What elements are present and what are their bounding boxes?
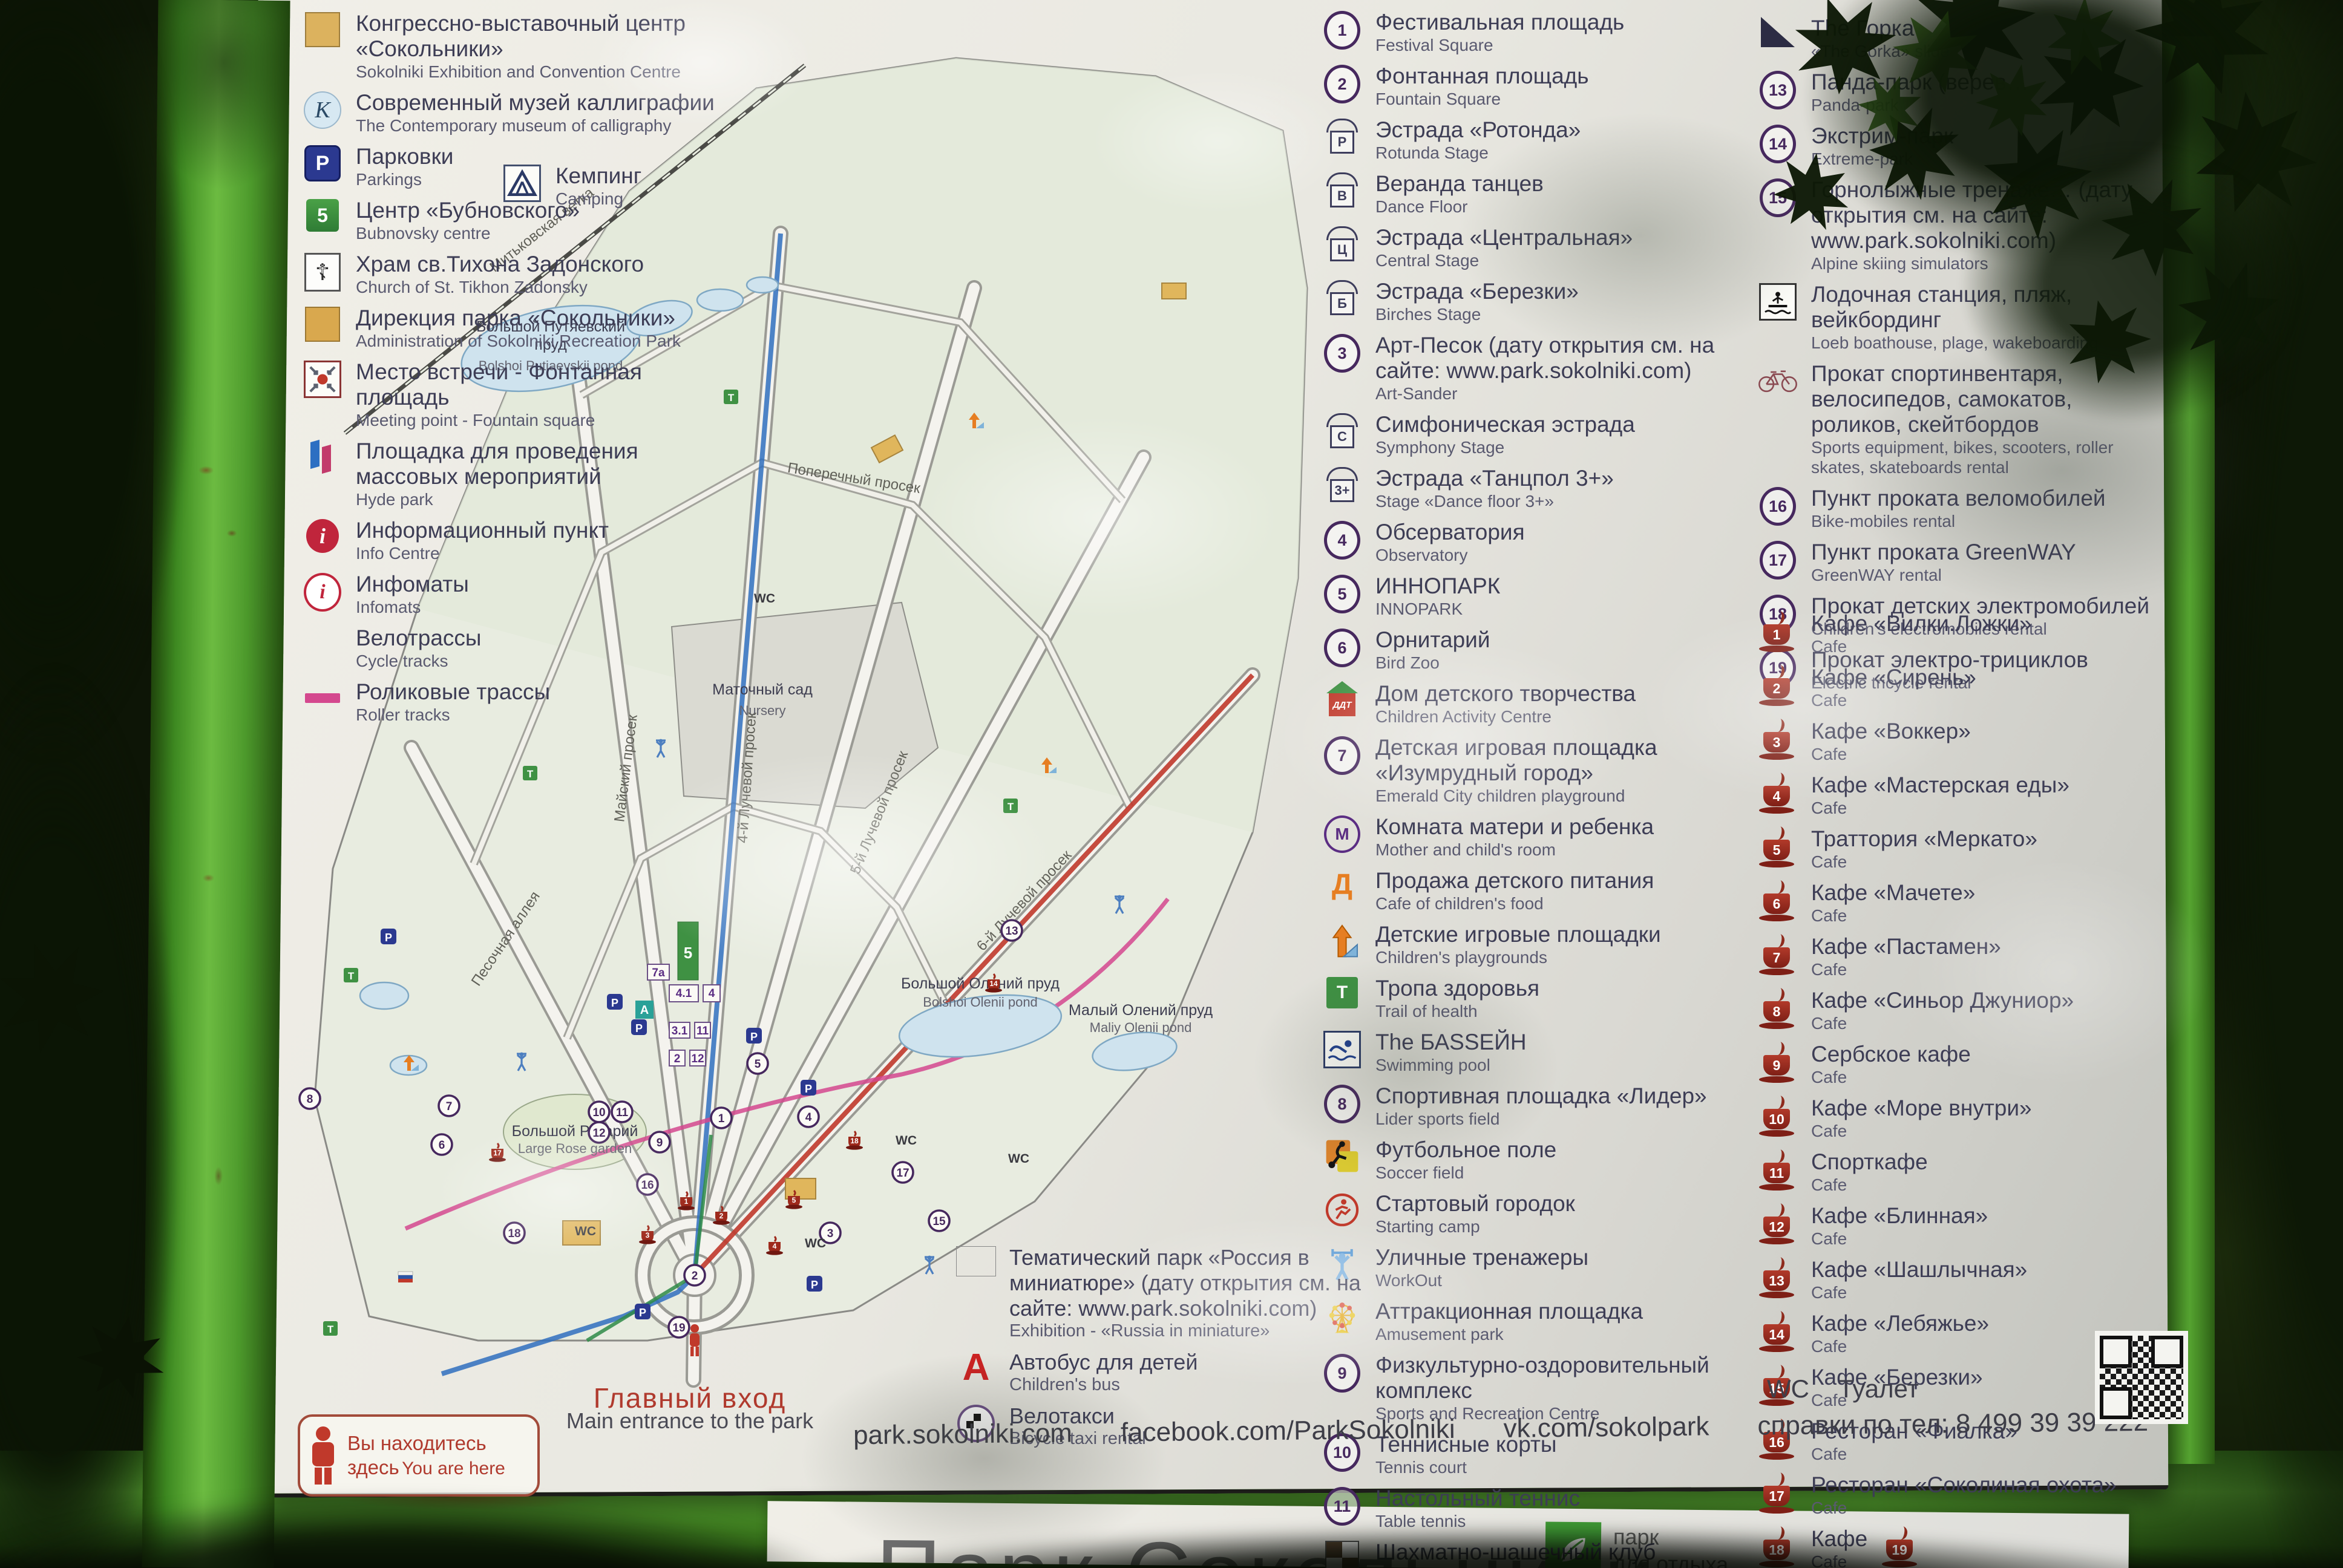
map-marker-16: 16: [637, 1174, 658, 1195]
dance-floor-icon: В: [1322, 171, 1362, 209]
legend-item: 5 ИННОПАРК INNOPARK: [1322, 573, 1734, 619]
legend-item: Прокат спортинвентаря, велосипедов, само…: [1758, 361, 2157, 477]
legend-item: 3 Арт-Песок (дату открытия см. на сайте:…: [1322, 333, 1734, 403]
legend-label-ru: Кафе «Вилки.Ложки»: [1811, 611, 2032, 636]
svg-text:7а: 7а: [652, 967, 665, 979]
legend-item: 18 Кафе Cafe 19: [1758, 1526, 2157, 1568]
legend-item: 4 Кафе «Мастерская еды» Cafe: [1758, 773, 2157, 818]
legend-label-ru: Конгрессно-выставочный центр «Сокольники…: [356, 11, 720, 62]
map-marker-8: 8: [300, 1088, 320, 1109]
legend-item: Место встречи - Фонтанная площадь Meetin…: [303, 359, 720, 430]
svg-text:17: 17: [493, 1149, 502, 1157]
legend-label-en: Amusement park: [1375, 1324, 1643, 1344]
legend-label-ru: Кафе «Море внутри»: [1811, 1096, 2032, 1121]
legend-label-ru: Уличные тренажеры: [1375, 1245, 1588, 1270]
legend-label-ru: ИННОПАРК: [1375, 573, 1500, 599]
legend-label-en: Cafe: [1811, 1067, 1971, 1087]
svg-text:13: 13: [1005, 925, 1018, 938]
legend-label-en: Parkings: [356, 169, 453, 189]
legend-label-en: Emerald City children playground: [1375, 786, 1734, 806]
map-wc: WC: [805, 1236, 826, 1250]
map-flag: [398, 1272, 413, 1282]
svg-text:1: 1: [684, 1197, 689, 1206]
legend-label-ru: Аттракционная площадка: [1375, 1299, 1643, 1324]
legend-label-ru: Кафе «Пастамен»: [1811, 934, 2001, 959]
legend-label-ru: Фонтанная площадь: [1375, 64, 1589, 89]
legend-label-ru: Кафе «Сирень»: [1811, 665, 1976, 690]
legend-label-ru: Тропа здоровья: [1375, 976, 1539, 1001]
cafe-19-icon: 19: [1881, 1526, 1921, 1568]
svg-text:11: 11: [616, 1106, 629, 1119]
map-parking: P: [631, 1019, 647, 1035]
symphony-stage-icon: С: [1322, 412, 1362, 449]
birches-stage-icon: Б: [1322, 279, 1362, 316]
legend-label-ru: Эстрада «Ротонда»: [1375, 117, 1581, 143]
legend-label-en: Observatory: [1375, 545, 1525, 565]
legend-item: 2 Кафе «Сирень» Cafe: [1758, 665, 2157, 710]
legend-label-ru: Автобус для детей: [1009, 1350, 1198, 1375]
legend-label-en: Administration of Sokolniki Recreation P…: [356, 331, 681, 351]
legend-label-ru: Дом детского творчества: [1375, 681, 1636, 707]
map-marker-9: 9: [649, 1132, 670, 1152]
legend-label-ru: Информационный пункт: [356, 518, 609, 543]
legend-label-en: Dance Floor: [1375, 197, 1544, 217]
legend-item: М Комната матери и ребенка Mother and ch…: [1322, 814, 1734, 860]
legend-label-ru: Сербское кафе: [1811, 1042, 1971, 1067]
cafe-13-icon: 13: [1758, 1257, 1798, 1299]
legend-label-ru: Кафе: [1811, 1526, 1867, 1552]
main-entrance-ru: Главный вход: [545, 1385, 835, 1411]
you-are-here-person-icon: [310, 1426, 336, 1485]
russia-flag-icon: [956, 1245, 996, 1276]
legend-label-ru: Место встречи - Фонтанная площадь: [356, 359, 720, 410]
legend-item: 3+ Эстрада «Танцпол 3+» Stage «Dance flo…: [1322, 466, 1734, 511]
legend-item: 5 Центр «Бубновского» Bubnovsky centre: [303, 198, 720, 243]
legend-label-en: Info Centre: [356, 543, 609, 563]
cafe-6-icon: 6: [1758, 880, 1798, 923]
legend-label-ru: Физкультурно-оздоровительный комплекс: [1375, 1353, 1734, 1403]
you-are-here-en: You are here: [402, 1459, 505, 1478]
legend-item: Аттракционная площадка Amusement park: [1322, 1299, 1734, 1344]
map-marker-1: 1: [711, 1108, 732, 1128]
svg-text:Т: Т: [327, 1324, 334, 1335]
legend-item: Шахматно-шашечный клуб Chess & Checkers …: [1322, 1540, 1734, 1568]
legend-label-ru: Шахматно-шашечный клуб: [1375, 1540, 1656, 1565]
chess-club-icon: [1322, 1540, 1362, 1568]
cafe-1-icon: 1: [1758, 611, 1798, 653]
svg-text:P: P: [635, 1022, 643, 1034]
legend-label-en: Rotunda Stage: [1375, 143, 1581, 163]
svg-text:А: А: [640, 1004, 649, 1017]
legend-label-ru: Горнолыжные тренаже… (дату открытия см. …: [1811, 177, 2157, 253]
legend-label-en: The Contemporary museum of calligraphy: [356, 116, 715, 136]
marker-14-icon: 14: [1758, 123, 1798, 163]
legend-label-en: Cafe: [1811, 798, 2069, 818]
svg-text:6: 6: [439, 1139, 445, 1152]
footer-site: park.sokolniki.com: [853, 1418, 1072, 1451]
legend-label-ru: Инфоматы: [356, 572, 469, 597]
meeting-point-icon: [303, 359, 342, 398]
svg-text:3.1: 3.1: [672, 1025, 688, 1037]
legend-item: 8 Спортивная площадка «Лидер» Lider spor…: [1322, 1083, 1734, 1129]
rotunda-stage-icon: Р: [1322, 117, 1362, 155]
legend-label-ru: Орнитарий: [1375, 627, 1490, 653]
svg-text:P: P: [611, 997, 618, 1009]
map-trail: Т: [1003, 799, 1018, 813]
marker-11-icon: 11: [1322, 1486, 1362, 1526]
map-marker-19: 19: [669, 1317, 689, 1338]
marker-8-icon: 8: [1322, 1083, 1362, 1123]
legend-label-en: Soccer field: [1375, 1163, 1556, 1183]
legend-item: 17 Пункт проката GreenWAY GreenWAY renta…: [1758, 540, 2157, 585]
svg-text:17: 17: [896, 1167, 909, 1180]
legend-item: The Горка «The Gorka» slide: [1758, 16, 2157, 61]
main-entrance-en: Main entrance to the park: [545, 1411, 835, 1431]
legend-label-en: Cafe: [1811, 1336, 1989, 1356]
legend-item: 11 Спорткафе Cafe: [1758, 1149, 2157, 1195]
legend-label-ru: Кафе «Блинная»: [1811, 1203, 1988, 1229]
info-centre-icon: i: [303, 518, 342, 553]
legend-label-en: Cafe: [1811, 744, 1971, 764]
svg-text:18: 18: [508, 1227, 520, 1240]
legend-item: Детские игровые площадки Children's play…: [1322, 922, 1734, 967]
map-marker-17: 17: [893, 1162, 913, 1183]
legend-item: Конгрессно-выставочный центр «Сокольники…: [303, 11, 720, 82]
legend-label-ru: Эстрада «Березки»: [1375, 279, 1579, 304]
legend-label-en: Sokolniki Exhibition and Convention Cent…: [356, 62, 720, 82]
cafe-5-icon: 5: [1758, 826, 1798, 869]
legend-label-en: Tennis court: [1375, 1457, 1557, 1477]
legend-item: Дирекция парка «Сокольники» Administrati…: [303, 305, 720, 351]
legend-label-ru: Детские игровые площадки: [1375, 922, 1661, 947]
legend-label-en: Panda-park: [1811, 95, 2029, 115]
legend-label-en: Cafe: [1811, 906, 1975, 926]
legend-label-en: Alpine skiing simulators: [1811, 253, 2157, 273]
map-wc: WC: [754, 592, 775, 606]
svg-text:5: 5: [755, 1058, 761, 1071]
legend-item: 8 Кафе «Синьор Джуниор» Cafe: [1758, 988, 2157, 1033]
legend-label-ru: Продажа детского питания: [1375, 868, 1654, 893]
sports-rental-icon: [1758, 361, 1798, 397]
marker-16-icon: 16: [1758, 486, 1798, 526]
legend-label-en: Church of St. Tikhon Zadonsky: [356, 277, 644, 297]
legend-label-en: Bird Zoo: [1375, 653, 1490, 673]
legend-label-en: Bubnovsky centre: [356, 223, 580, 243]
svg-text:18: 18: [850, 1137, 859, 1145]
legend-label-ru: Траттория «Меркато»: [1811, 826, 2037, 852]
map-wc: WC: [575, 1224, 596, 1238]
svg-text:P: P: [385, 932, 392, 944]
children-bus-icon: А: [956, 1350, 996, 1385]
legend-label-en: Art-Sander: [1375, 384, 1734, 403]
marker-1-icon: 1: [1322, 10, 1362, 50]
legend-column-left: Конгрессно-выставочный центр «Сокольники…: [303, 11, 720, 733]
legend-label-ru: Веранда танцев: [1375, 171, 1544, 197]
legend-label-ru: Кафе «Мачете»: [1811, 880, 1975, 906]
wc-legend-row: WC Туалет: [1767, 1374, 1919, 1403]
legend-item: 1 Фестивальная площадь Festival Square: [1322, 10, 1734, 55]
legend-label-en: Meeting point - Fountain square: [356, 410, 720, 430]
map-wc: WC: [896, 1134, 917, 1148]
trail-of-health-icon: Т: [1322, 976, 1362, 1008]
legend-item: Лодочная станция, пляж, вейкбординг Loeb…: [1758, 282, 2157, 353]
legend-label-ru: Роликовые трассы: [356, 679, 550, 705]
legend-label-en: Mother and child's room: [1375, 840, 1654, 860]
legend-label-ru: Эстрада «Центральная»: [1375, 225, 1633, 250]
legend-item: Тематический парк «Россия в миниатюре» (…: [956, 1245, 1368, 1341]
legend-item: 7 Кафе «Пастамен» Cafe: [1758, 934, 2157, 979]
legend-label-ru: Обсерватория: [1375, 520, 1525, 545]
legend-label-en: Cafe: [1811, 1498, 2117, 1518]
legend-label-en: Lider sports field: [1375, 1109, 1707, 1129]
legend-item: В Веранда танцев Dance Floor: [1322, 171, 1734, 217]
legend-item: The БАSSЕЙН Swimming pool: [1322, 1030, 1734, 1075]
map-marker-4: 4: [798, 1106, 819, 1127]
legend-label-en: Children's playgrounds: [1375, 947, 1661, 967]
map-parking: P: [807, 1276, 822, 1292]
footer-facebook: facebook.com/ParkSokolniki: [1121, 1414, 1455, 1448]
svg-text:11: 11: [696, 1025, 709, 1037]
legend-item: 10 Кафе «Море внутри» Cafe: [1758, 1096, 2157, 1141]
legend-label-ru: Эстрада «Танцпол 3+»: [1375, 466, 1614, 491]
legend-label-ru: Храм св.Тихона Задонского: [356, 252, 644, 277]
svg-text:5: 5: [684, 944, 692, 962]
soccer-field-icon: [1322, 1137, 1362, 1174]
cafe-17-icon: 17: [1758, 1472, 1798, 1515]
svg-text:8: 8: [307, 1093, 313, 1106]
parking-icon: P: [303, 144, 342, 181]
legend-label-en: Bike-mobiles rental: [1811, 511, 2106, 531]
legend-label-en: Cycle tracks: [356, 651, 482, 671]
map-label: Большой Розарий: [512, 1123, 638, 1140]
wc-label-ru: Туалет: [1838, 1374, 1919, 1403]
map-marker-15: 15: [929, 1210, 949, 1231]
marker-6-icon: 6: [1322, 627, 1362, 667]
legend-item: Площадка для проведения массовых меропри…: [303, 439, 720, 509]
hyde-park-icon: [303, 439, 342, 475]
photo-of-park-map-sign: 5 А 4.147а 3.111212 Большой Путяевскийпр…: [0, 0, 2343, 1568]
legend-label-en: Cafe: [1811, 959, 2001, 979]
legend-item: Футбольное поле Soccer field: [1322, 1137, 1734, 1183]
svg-text:Т: Т: [728, 392, 735, 403]
map-marker-10: 10: [589, 1102, 609, 1122]
svg-text:16: 16: [641, 1179, 654, 1192]
children-activity-centre-icon: ДДТ: [1322, 681, 1362, 716]
svg-text:14: 14: [989, 979, 998, 988]
map-parking: P: [746, 1028, 762, 1044]
cafe-3-icon: 3: [1758, 719, 1798, 761]
marker-5-icon: 5: [1322, 573, 1362, 613]
legend-label-ru: Спортивная площадка «Лидер»: [1375, 1083, 1707, 1109]
qr-code-right: [2095, 1331, 2188, 1424]
map-marker-11: 11: [612, 1102, 632, 1122]
legend-label-en: Table tennis: [1375, 1511, 1580, 1531]
map-marker-18: 18: [504, 1223, 525, 1243]
map-parking: P: [381, 929, 396, 944]
footer-phone: справки по тел: 8 499 39 39 222: [1757, 1407, 2148, 1442]
legend-label-en: Hyde park: [356, 489, 720, 509]
svg-text:Т: Т: [527, 768, 534, 780]
legend-label-en: Cafe: [1811, 636, 2032, 656]
marker-13-icon: 13: [1758, 70, 1798, 109]
svg-text:5: 5: [792, 1196, 796, 1204]
svg-text:10: 10: [592, 1106, 605, 1119]
legend-item: 4 Обсерватория Observatory: [1322, 520, 1734, 565]
map-parking: P: [635, 1304, 650, 1319]
cafe-12-icon: 12: [1758, 1203, 1798, 1246]
legend-label-ru: Пункт проката веломобилей: [1811, 486, 2106, 511]
legend-label-ru: Кафе «Синьор Джуниор»: [1811, 988, 2074, 1013]
legend-label-en: Starting camp: [1375, 1217, 1575, 1236]
map-label: Большой Олений пруд: [901, 975, 1060, 992]
legend-label-en: Exhibition - «Russia in miniature»: [1009, 1321, 1368, 1341]
map-label: Малый Олений пруд: [1069, 1002, 1213, 1019]
calligraphy-museum-icon: К: [303, 90, 342, 129]
map-trail: Т: [523, 766, 537, 780]
playgrounds-icon: [1322, 922, 1362, 958]
legend-label-ru: Кафе «Шашлычная»: [1811, 1257, 2027, 1282]
legend-label-ru: Прокат спортинвентаря, велосипедов, само…: [1811, 361, 2157, 437]
map-wc: WC: [1008, 1152, 1029, 1166]
mother-child-room-icon: М: [1322, 814, 1362, 853]
map-marker-7: 7: [439, 1096, 459, 1116]
legend-label-en: Cafe: [1811, 690, 1976, 710]
footer-vk: vk.com/sokolpark: [1503, 1411, 1709, 1444]
legend-label-ru: Дирекция парка «Сокольники»: [356, 305, 681, 331]
dancefloor3-stage-icon: 3+: [1322, 466, 1362, 503]
legend-label-en: Cafe: [1811, 1444, 2017, 1464]
legend-item: Велотрассы Cycle tracks: [303, 626, 720, 671]
legend-label-en: Cafe: [1811, 1013, 2074, 1033]
legend-label-ru: Футбольное поле: [1375, 1137, 1556, 1163]
legend-item: 9 Сербское кафе Cafe: [1758, 1042, 2157, 1087]
legend-label-ru: Фестивальная площадь: [1375, 10, 1624, 35]
legend-label-en: Symphony Stage: [1375, 437, 1635, 457]
svg-text:12: 12: [592, 1127, 605, 1140]
legend-item: Б Эстрада «Березки» Birches Stage: [1322, 279, 1734, 324]
marker-15-icon: 15: [1758, 177, 1798, 217]
legend-label-ru: Кемпинг: [555, 163, 641, 189]
legend-label-en: Central Stage: [1375, 250, 1633, 270]
marker-2-icon: 2: [1322, 64, 1362, 103]
svg-text:4: 4: [773, 1242, 777, 1250]
legend-item: Уличные тренажеры WorkOut: [1322, 1245, 1734, 1290]
svg-text:P: P: [805, 1083, 812, 1095]
marker-3-icon: 3: [1322, 333, 1362, 373]
legend-item: Р Эстрада «Ротонда» Rotunda Stage: [1322, 117, 1734, 163]
legend-label-en: Cafe: [1811, 1282, 2027, 1302]
legend-label-en: Fountain Square: [1375, 89, 1589, 109]
cafe-8-icon: 8: [1758, 988, 1798, 1030]
green-frame-left-post: [142, 0, 290, 1568]
legend-label-ru: Лодочная станция, пляж, вейкбординг: [1811, 282, 2157, 333]
map-marker-6: 6: [431, 1134, 452, 1155]
swimming-pool-icon: [1322, 1030, 1362, 1068]
svg-text:19: 19: [672, 1322, 685, 1334]
cafe-7-icon: 7: [1758, 934, 1798, 976]
cafe-14-icon: 14: [1758, 1311, 1798, 1353]
green-frame-right-post: [2159, 36, 2215, 1464]
legend-label-en: Cafe: [1811, 1175, 1928, 1195]
map-trail: Т: [724, 390, 738, 404]
legend-item: Роликовые трассы Roller tracks: [303, 679, 720, 725]
map-parking: P: [607, 994, 623, 1010]
bubnovsky-centre-icon: 5: [303, 198, 342, 232]
cafe-2-icon: 2: [1758, 665, 1798, 707]
map-marker-5: 5: [747, 1053, 768, 1074]
legend-label-ru: Кафе «Лебяжье»: [1811, 1311, 1989, 1336]
svg-text:4: 4: [805, 1111, 812, 1124]
cafe-11-icon: 11: [1758, 1149, 1798, 1192]
legend-label-ru: Арт-Песок (дату открытия см. на сайте: w…: [1375, 333, 1734, 384]
svg-text:2: 2: [719, 1212, 724, 1220]
map-marker-2: 2: [684, 1265, 705, 1285]
children-food-icon: Д: [1322, 868, 1362, 901]
legend-item: 17 Ресторан «Соколиная охота» Cafe: [1758, 1472, 2157, 1518]
svg-text:3: 3: [827, 1227, 834, 1240]
cafe-4-icon: 4: [1758, 773, 1798, 815]
svg-text:P: P: [750, 1031, 758, 1043]
legend-label-ru: Кафе «Мастерская еды»: [1811, 773, 2069, 798]
legend-item: 14 Экстрим-парк Extreme-park: [1758, 123, 2157, 169]
marker-4-icon: 4: [1322, 520, 1362, 560]
legend-label-en: Festival Square: [1375, 35, 1624, 55]
svg-text:Т: Т: [348, 970, 355, 982]
legend-label-en: Roller tracks: [356, 705, 550, 725]
svg-text:15: 15: [932, 1215, 946, 1228]
legend-item: Т Тропа здоровья Trail of health: [1322, 976, 1734, 1021]
svg-text:9: 9: [657, 1137, 663, 1149]
legend-item: Д Продажа детского питания Cafe of child…: [1322, 868, 1734, 913]
legend-label-ru: Панда-парк (верев…: [1811, 70, 2029, 95]
central-stage-icon: Ц: [1322, 225, 1362, 263]
svg-text:P: P: [811, 1279, 818, 1291]
legend-label-en: Sports equipment, bikes, scooters, rolle…: [1811, 437, 2157, 477]
legend-item: 1 Кафе «Вилки.Ложки» Cafe: [1758, 611, 2157, 656]
legend-label-ru: Комната матери и ребенка: [1375, 814, 1654, 840]
legend-label-en: Stage «Dance floor 3+»: [1375, 491, 1614, 511]
legend-label-en: Swimming pool: [1375, 1055, 1527, 1075]
legend-label-ru: Экстрим-парк: [1811, 123, 1953, 149]
legend-label-ru: The БАSSЕЙН: [1375, 1030, 1527, 1055]
legend-item: 13 Кафе «Шашлычная» Cafe: [1758, 1257, 2157, 1302]
main-entrance-caption: Главный вход Main entrance to the park: [545, 1385, 835, 1431]
map-trail: Т: [323, 1321, 338, 1336]
map-label: Bolshoi Olenii pond: [923, 995, 1038, 1010]
legend-item: 3 Кафе «Воккер» Cafe: [1758, 719, 2157, 764]
legend-label-en: GreenWAY rental: [1811, 565, 2076, 585]
legend-label-ru: Парковки: [356, 144, 453, 169]
legend-label-ru: Площадка для проведения массовых меропри…: [356, 439, 720, 489]
map-parking: P: [801, 1080, 816, 1096]
marker-7-icon: 7: [1322, 735, 1362, 775]
map-label: Large Rose garden: [518, 1141, 632, 1156]
legend-item: i Информационный пункт Info Centre: [303, 518, 720, 563]
svg-text:P: P: [639, 1307, 646, 1319]
legend-label-ru: Пункт проката GreenWAY: [1811, 540, 2076, 565]
cafe-9-icon: 9: [1758, 1042, 1798, 1084]
legend-column-right: The Горка «The Gorka» slide 13 Панда-пар…: [1758, 16, 2157, 701]
legend-label-ru: Центр «Бубновского»: [356, 198, 580, 223]
legend-label-ru: Симфоническая эстрада: [1375, 412, 1635, 437]
legend-label-en: INNOPARK: [1375, 599, 1500, 619]
legend-label-ru: Настольный теннис: [1375, 1486, 1580, 1511]
cafe-10-icon: 10: [1758, 1096, 1798, 1138]
wc-label: WC: [1767, 1374, 1809, 1403]
camping-icon: [502, 163, 542, 202]
legend-item: 16 Пункт проката веломобилей Bike-mobile…: [1758, 486, 2157, 531]
svg-text:1: 1: [718, 1112, 725, 1125]
